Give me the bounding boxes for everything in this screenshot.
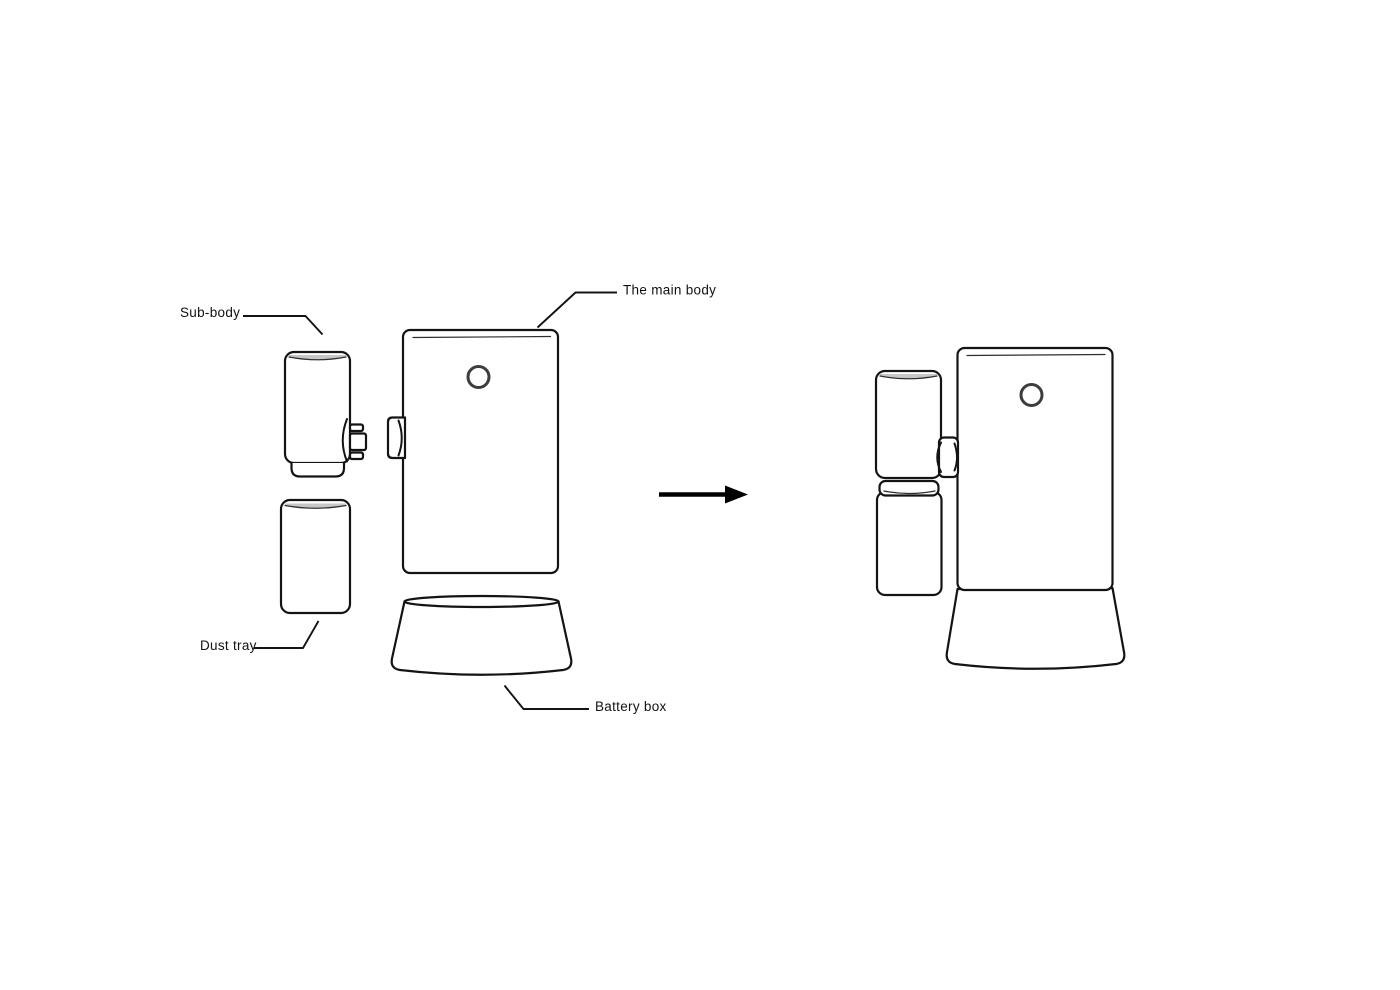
exploded-sub-body bbox=[285, 352, 366, 477]
label-sub-body: Sub-body bbox=[180, 305, 323, 335]
sub-body-connector-prong-top bbox=[350, 425, 363, 432]
label-main-body: The main body bbox=[538, 283, 717, 328]
transform-arrow bbox=[659, 486, 748, 504]
assembled-dust-tray bbox=[877, 481, 942, 595]
label-battery-box: Battery box bbox=[505, 686, 667, 715]
label-dust-tray: Dust tray bbox=[200, 621, 319, 653]
assembled-view bbox=[876, 348, 1124, 669]
arrow-head bbox=[725, 486, 748, 504]
assembled-main-body bbox=[958, 348, 1113, 590]
battery-box-body bbox=[392, 602, 572, 675]
assembled-connector bbox=[937, 438, 958, 478]
sub-body-connector-tab bbox=[350, 434, 366, 451]
main-body-leader-line bbox=[538, 293, 618, 328]
exploded-view: Sub-body The main body Dust tray Battery… bbox=[180, 283, 716, 715]
dust-tray-leader-line bbox=[254, 621, 319, 648]
dust-tray-outline bbox=[281, 500, 350, 613]
diagram-canvas: Sub-body The main body Dust tray Battery… bbox=[0, 0, 1400, 990]
assembly-diagram-svg: Sub-body The main body Dust tray Battery… bbox=[0, 0, 1400, 990]
assembled-sub-body-outline bbox=[876, 371, 941, 478]
battery-box-top-rim bbox=[405, 596, 559, 607]
assembled-power-button-icon bbox=[1021, 385, 1042, 406]
battery-box-label: Battery box bbox=[595, 699, 667, 714]
exploded-battery-box bbox=[392, 596, 572, 675]
sub-body-leader-line bbox=[243, 316, 323, 335]
dust-tray-label: Dust tray bbox=[200, 638, 257, 653]
sub-body-connector-prong-bottom bbox=[350, 453, 363, 460]
exploded-dust-tray bbox=[281, 500, 350, 613]
battery-box-leader-line bbox=[505, 686, 590, 710]
sub-body-base-step bbox=[292, 463, 345, 477]
assembled-dust-tray-outline bbox=[877, 492, 942, 595]
assembled-battery-box bbox=[947, 588, 1125, 669]
power-button-icon bbox=[468, 367, 489, 388]
main-body-label: The main body bbox=[623, 283, 716, 298]
sub-body-label: Sub-body bbox=[180, 305, 240, 320]
exploded-main-body bbox=[388, 330, 558, 573]
sub-body-outline bbox=[285, 352, 350, 463]
assembled-sub-body bbox=[876, 371, 941, 478]
